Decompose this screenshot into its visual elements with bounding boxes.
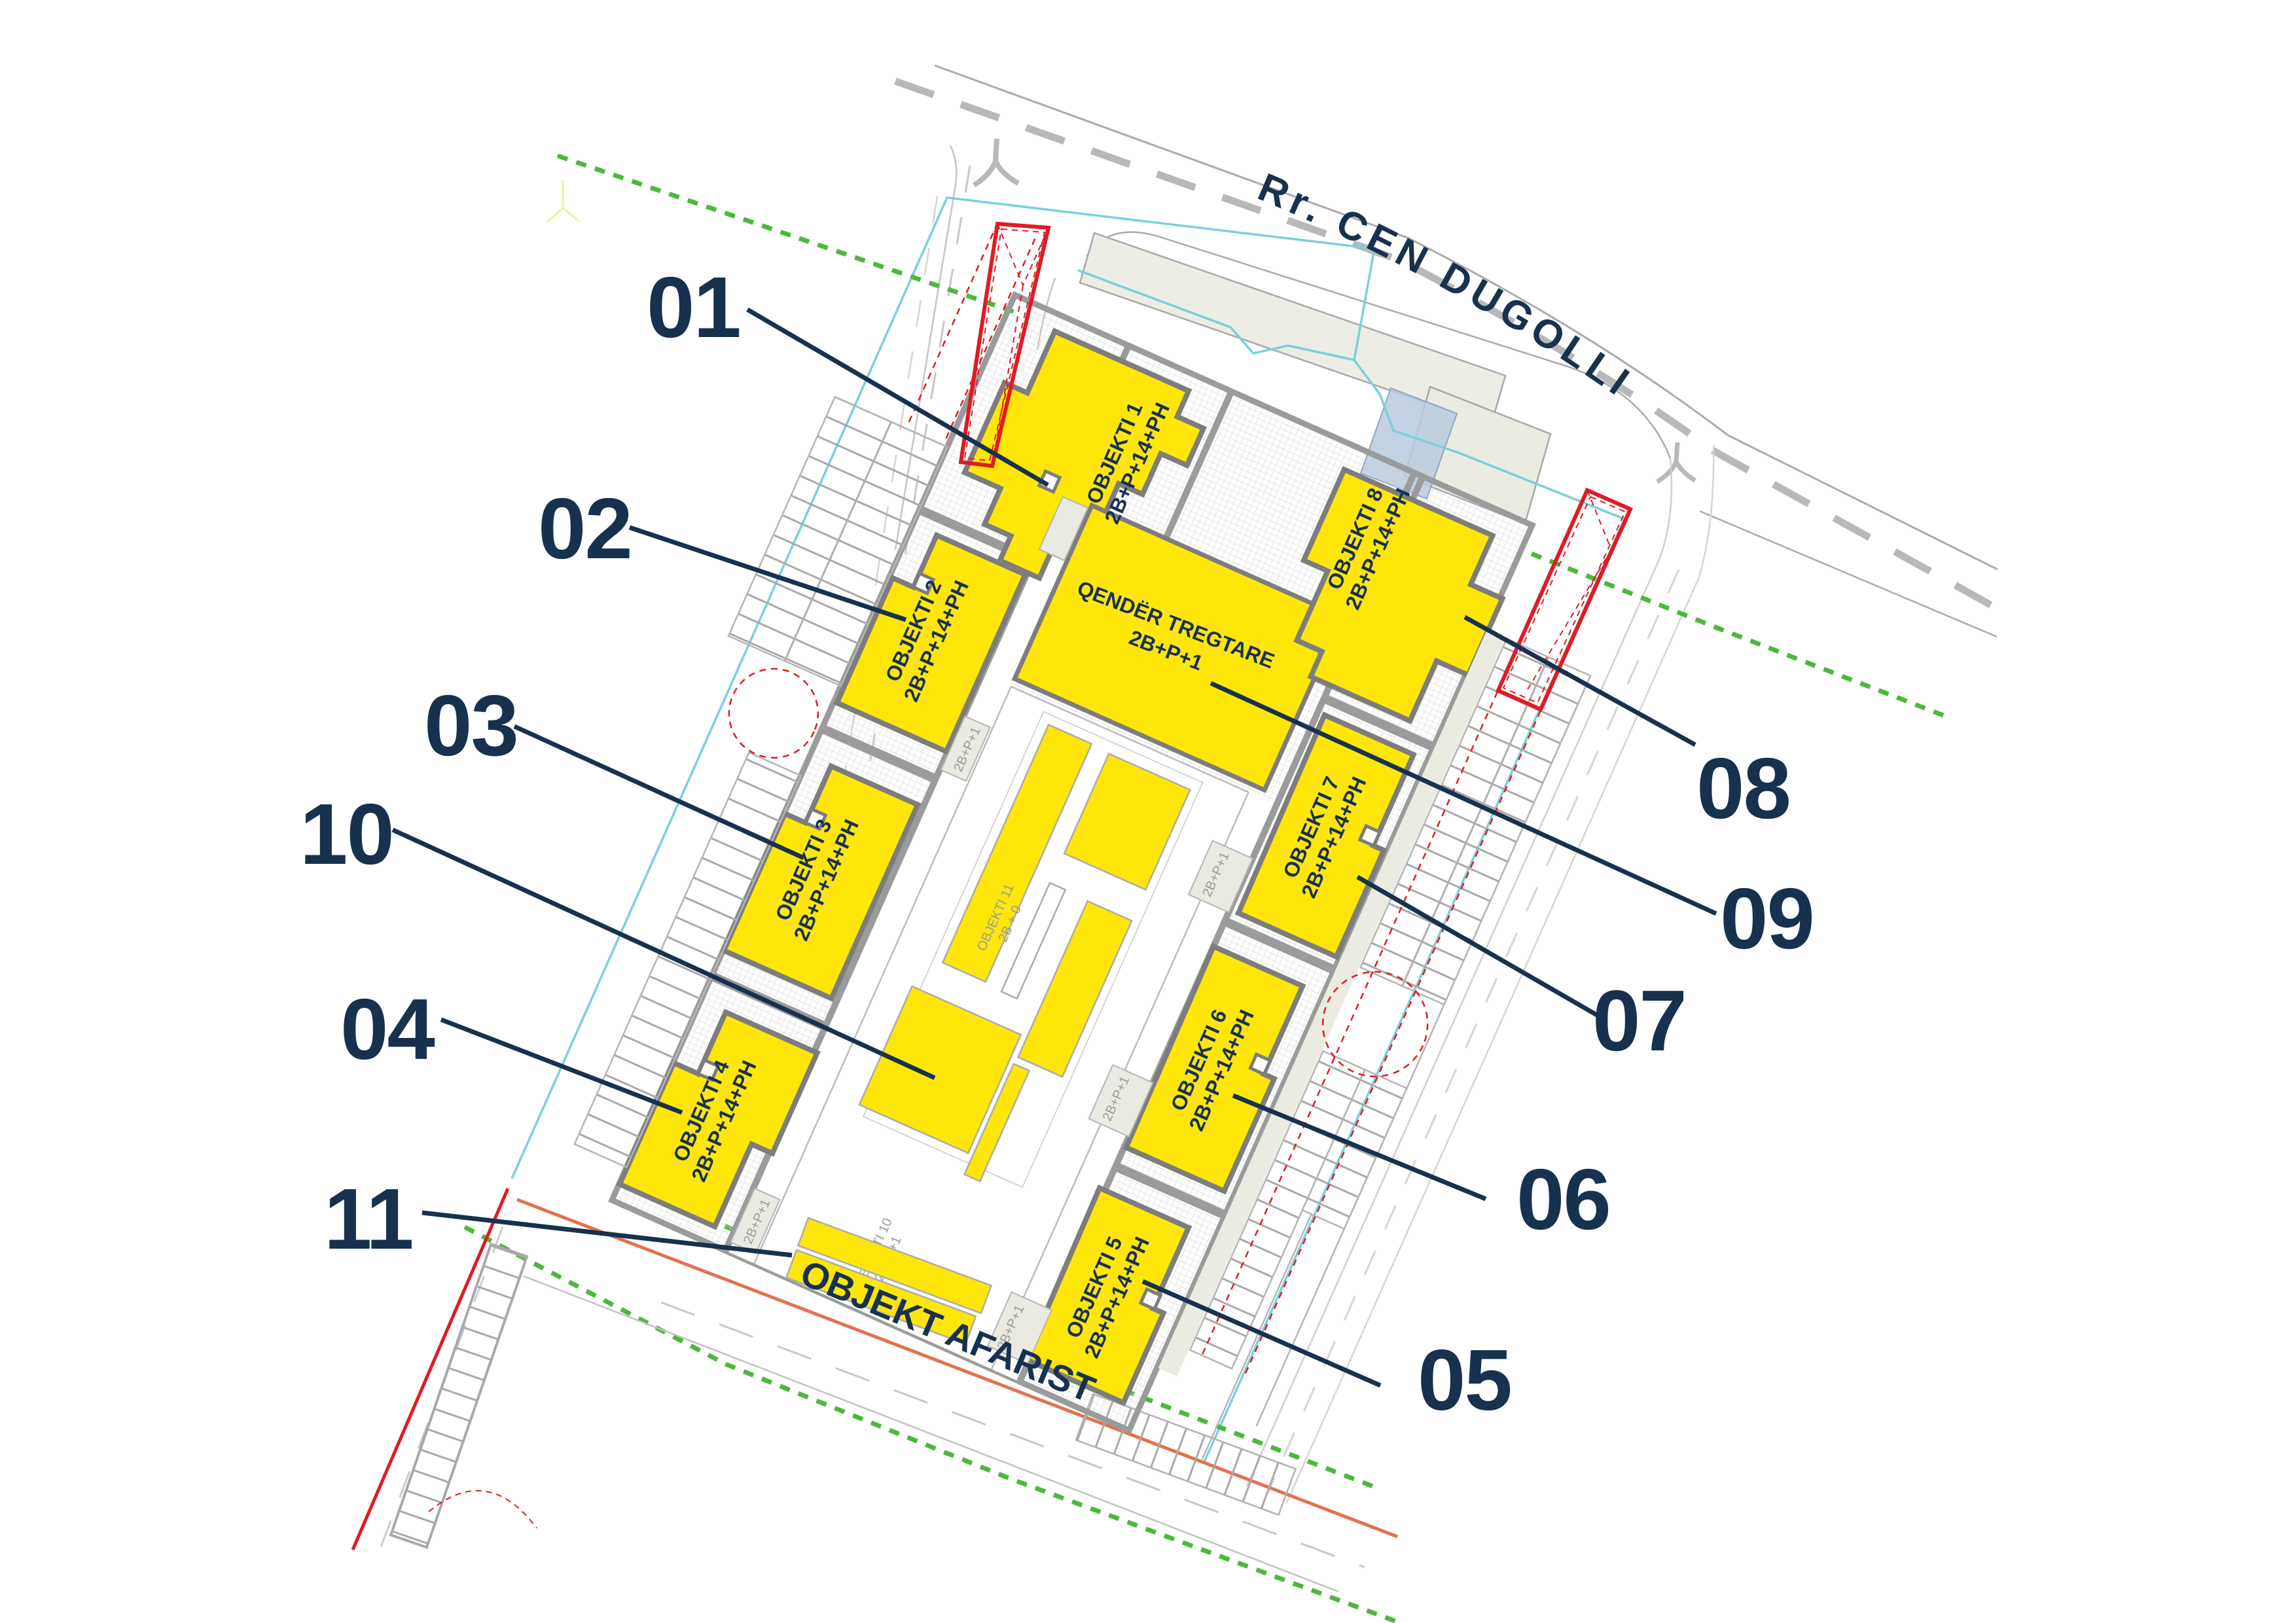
svg-text:06: 06 [1516, 1151, 1610, 1247]
svg-text:11: 11 [324, 1171, 413, 1267]
svg-text:07: 07 [1592, 972, 1686, 1069]
svg-text:04: 04 [340, 981, 435, 1077]
svg-text:02: 02 [538, 480, 632, 577]
svg-text:01: 01 [647, 259, 740, 355]
svg-text:08: 08 [1696, 740, 1790, 836]
svg-text:03: 03 [424, 677, 518, 774]
svg-text:09: 09 [1720, 870, 1814, 967]
svg-text:10: 10 [300, 786, 393, 882]
svg-text:05: 05 [1418, 1332, 1511, 1428]
